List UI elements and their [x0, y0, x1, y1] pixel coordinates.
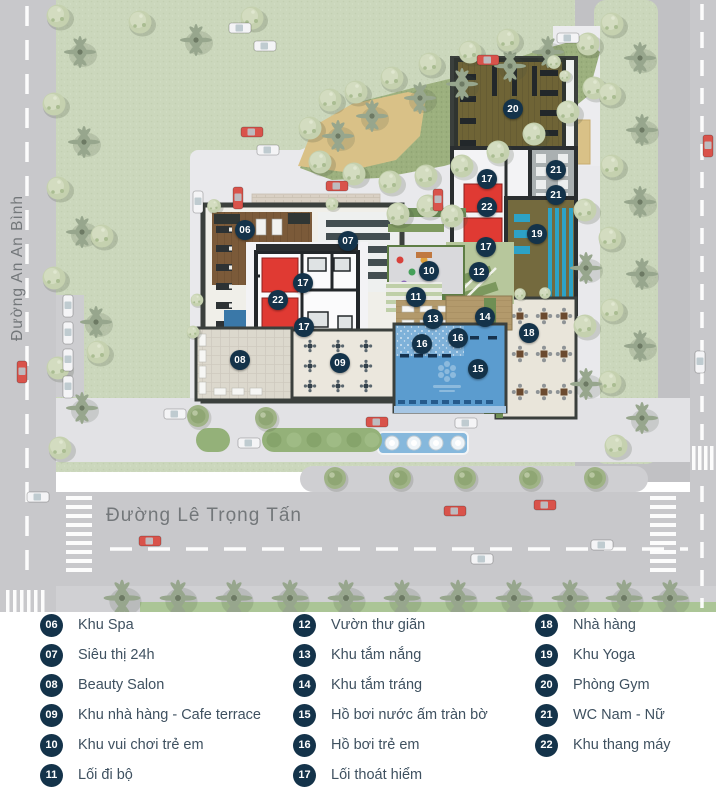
legend-number-badge: 16: [293, 734, 316, 757]
map-marker: 22: [268, 290, 288, 310]
map-marker: 16: [448, 328, 468, 348]
legend-label: Khu tắm nắng: [331, 647, 421, 663]
map-marker: 08: [230, 350, 250, 370]
car-icon: [557, 33, 579, 43]
car-icon: [63, 376, 73, 398]
legend-column-2: 12 Vườn thư giãn 13 Khu tắm nắng 14 Khu …: [293, 610, 535, 790]
map-marker: 19: [527, 224, 547, 244]
road-label-left: Đường An An Bình: [9, 195, 26, 341]
legend-item: 22 Khu thang máy: [535, 730, 705, 760]
legend-item: 08 Beauty Salon: [40, 670, 293, 700]
site-plan-map: Đường An An Bình Đường Lê Trọng Tấn 06 0…: [0, 0, 716, 612]
car-icon: [471, 554, 493, 564]
map-marker: 17: [293, 273, 313, 293]
car-icon: [229, 23, 251, 33]
legend-label: Vườn thư giãn: [331, 617, 425, 633]
legend-label: Khu Yoga: [573, 647, 635, 663]
legend-number-badge: 19: [535, 644, 558, 667]
legend-label: Nhà hàng: [573, 617, 636, 633]
legend-number-badge: 21: [535, 704, 558, 727]
car-icon: [591, 540, 613, 550]
car-icon: [63, 322, 73, 344]
legend-item: 21 WC Nam - Nữ: [535, 700, 705, 730]
legend-item: 07 Siêu thị 24h: [40, 640, 293, 670]
car-icon: [366, 417, 388, 427]
car-icon: [534, 500, 556, 510]
legend-column-1: 06 Khu Spa 07 Siêu thị 24h 08 Beauty Sal…: [40, 610, 293, 790]
legend-number-badge: 08: [40, 674, 63, 697]
legend-label: Hồ bơi trẻ em: [331, 737, 419, 753]
legend-item: 15 Hồ bơi nước ấm tràn bờ: [293, 700, 535, 730]
car-icon: [238, 438, 260, 448]
legend-label: Lối thoát hiểm: [331, 767, 422, 783]
legend-column-3: 18 Nhà hàng 19 Khu Yoga 20 Phòng Gym 21 …: [535, 610, 705, 790]
map-marker: 07: [338, 231, 358, 251]
legend-item: 10 Khu vui chơi trẻ em: [40, 730, 293, 760]
map-marker: 12: [469, 262, 489, 282]
map-marker: 17: [294, 317, 314, 337]
legend-number-badge: 18: [535, 614, 558, 637]
legend-number-badge: 11: [40, 764, 63, 787]
legend-label: Siêu thị 24h: [78, 647, 155, 663]
map-marker: 13: [423, 309, 443, 329]
legend-number-badge: 09: [40, 704, 63, 727]
legend-number-badge: 20: [535, 674, 558, 697]
left-building: [196, 205, 402, 401]
map-marker: 09: [330, 353, 350, 373]
crosswalk: [66, 496, 92, 572]
map-marker: 10: [419, 261, 439, 281]
car-icon: [63, 295, 73, 317]
site-plan-illustration: Đường An An Bình Đường Lê Trọng Tấn: [0, 0, 716, 612]
crosswalk: [650, 496, 676, 572]
car-icon: [257, 145, 279, 155]
map-marker: 17: [477, 169, 497, 189]
map-marker: 16: [412, 334, 432, 354]
legend-item: 06 Khu Spa: [40, 610, 293, 640]
legend-label: Phòng Gym: [573, 677, 650, 693]
car-icon: [193, 191, 203, 213]
legend-number-badge: 10: [40, 734, 63, 757]
map-marker: 15: [468, 359, 488, 379]
car-icon: [139, 536, 161, 546]
car-icon: [703, 135, 713, 157]
car-icon: [695, 351, 705, 373]
legend-number-badge: 22: [535, 734, 558, 757]
legend-number-badge: 12: [293, 614, 316, 637]
car-icon: [241, 127, 263, 137]
map-marker: 21: [546, 160, 566, 180]
legend-number-badge: 15: [293, 704, 316, 727]
car-icon: [164, 409, 186, 419]
car-icon: [444, 506, 466, 516]
legend-item: 16 Hồ bơi trẻ em: [293, 730, 535, 760]
legend-label: Hồ bơi nước ấm tràn bờ: [331, 707, 488, 723]
legend-label: Lối đi bộ: [78, 767, 133, 783]
legend-number-badge: 07: [40, 644, 63, 667]
car-icon: [233, 187, 243, 209]
car-icon: [27, 492, 49, 502]
legend-item: 12 Vườn thư giãn: [293, 610, 535, 640]
map-marker: 14: [475, 307, 495, 327]
legend-label: Khu thang máy: [573, 737, 671, 753]
map-marker: 17: [476, 237, 496, 257]
legend-item: 20 Phòng Gym: [535, 670, 705, 700]
legend-item: 13 Khu tắm nắng: [293, 640, 535, 670]
legend-item: 14 Khu tắm tráng: [293, 670, 535, 700]
legend: 06 Khu Spa 07 Siêu thị 24h 08 Beauty Sal…: [0, 600, 716, 790]
map-marker: 21: [546, 185, 566, 205]
map-marker: 22: [477, 197, 497, 217]
car-icon: [254, 41, 276, 51]
legend-label: Khu tắm tráng: [331, 677, 422, 693]
legend-label: WC Nam - Nữ: [573, 707, 665, 723]
car-icon: [326, 181, 348, 191]
road-label-bottom: Đường Lê Trọng Tấn: [106, 505, 302, 526]
legend-item: 18 Nhà hàng: [535, 610, 705, 640]
car-icon: [17, 361, 27, 383]
legend-number-badge: 06: [40, 614, 63, 637]
legend-item: 17 Lối thoát hiểm: [293, 760, 535, 790]
map-marker: 11: [406, 287, 426, 307]
car-icon: [477, 55, 499, 65]
car-icon: [63, 349, 73, 371]
pool-tile-marks: [398, 400, 493, 404]
legend-number-badge: 14: [293, 674, 316, 697]
legend-item: 11 Lối đi bộ: [40, 760, 293, 790]
legend-number-badge: 13: [293, 644, 316, 667]
legend-item: 09 Khu nhà hàng - Cafe terrace: [40, 700, 293, 730]
legend-label: Khu nhà hàng - Cafe terrace: [78, 707, 261, 723]
car-icon: [433, 189, 443, 211]
map-marker: 20: [503, 99, 523, 119]
elevator-shaft: [262, 258, 298, 292]
legend-label: Khu Spa: [78, 617, 134, 633]
car-icon: [455, 418, 477, 428]
legend-label: Beauty Salon: [78, 677, 164, 693]
map-marker: 06: [235, 220, 255, 240]
legend-label: Khu vui chơi trẻ em: [78, 737, 204, 753]
legend-number-badge: 17: [293, 764, 316, 787]
map-marker: 18: [519, 323, 539, 343]
legend-item: 19 Khu Yoga: [535, 640, 705, 670]
